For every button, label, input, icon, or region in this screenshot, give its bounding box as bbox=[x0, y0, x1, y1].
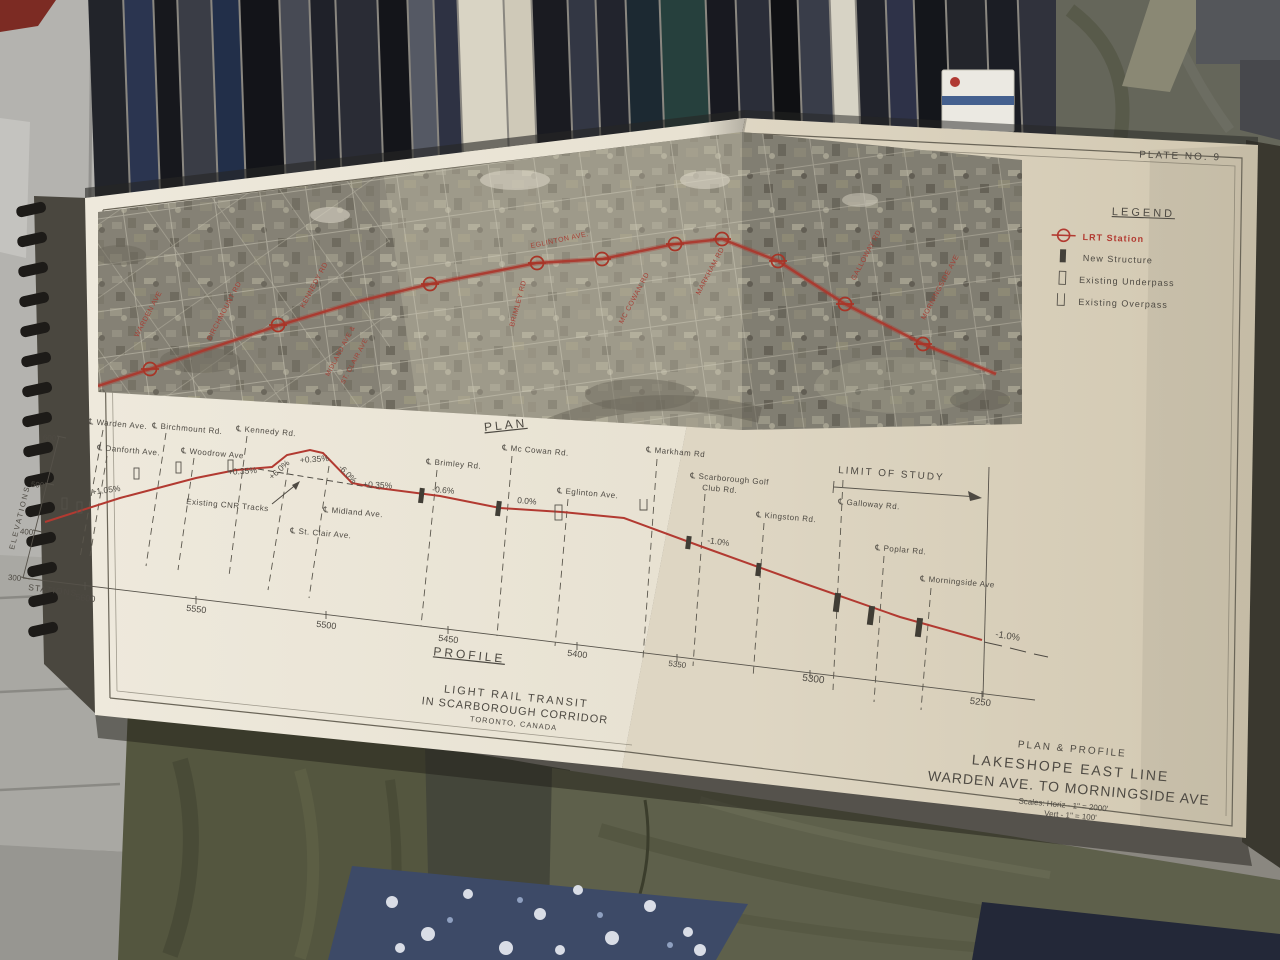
grade-label: 0.0% bbox=[517, 495, 538, 507]
floor-bottom bbox=[0, 845, 126, 960]
elevation-tick-label: 400 bbox=[20, 527, 35, 537]
white-box-dot bbox=[950, 77, 960, 87]
photo-svg: WARDEN AVE BIRCHMOUNT RD KENNEDY RD MIDL… bbox=[0, 0, 1280, 960]
grade-label: +0.35% bbox=[299, 453, 329, 465]
new-structure-icon bbox=[1060, 249, 1066, 262]
grade-label: +0.35% bbox=[227, 465, 257, 477]
elevation-tick-label: 300 bbox=[8, 573, 23, 583]
photo-of-plan-book: WARDEN AVE BIRCHMOUNT RD KENNEDY RD MIDL… bbox=[0, 0, 1280, 960]
elevation-tick-label: 500 bbox=[31, 480, 46, 490]
fabric-top-right bbox=[1056, 0, 1280, 150]
grade-label: +0.35% bbox=[363, 479, 393, 491]
grade-label: -0.6% bbox=[432, 484, 455, 496]
white-box-stripe bbox=[942, 96, 1014, 105]
elevation-tick-label: 600 bbox=[43, 433, 58, 443]
legend-title: LEGEND bbox=[1112, 206, 1176, 220]
